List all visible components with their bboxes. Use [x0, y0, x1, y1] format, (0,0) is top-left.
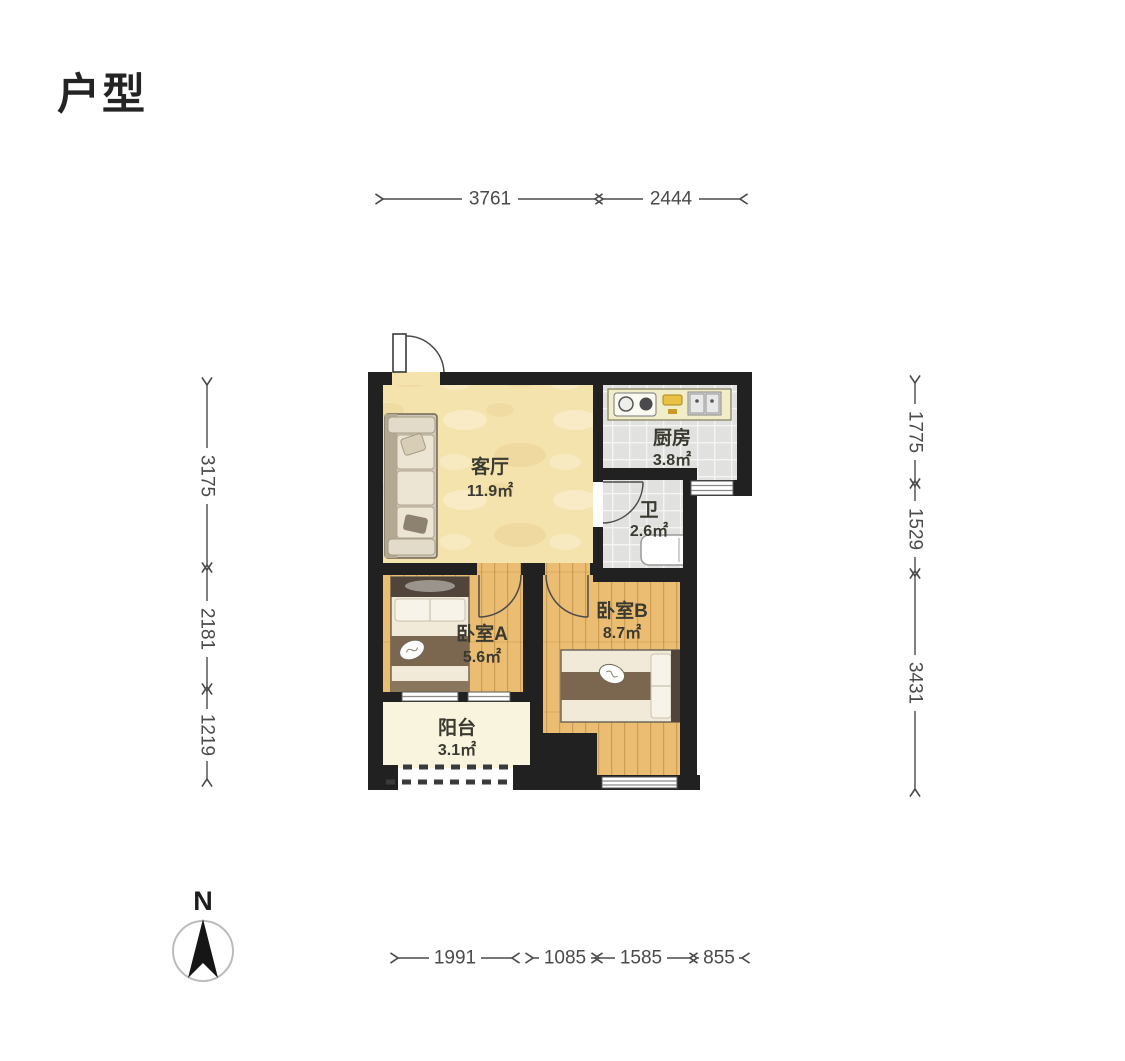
dim-bottom-1: 1991 [434, 948, 476, 969]
room-area-balcony: 3.1㎡ [438, 740, 476, 759]
dim-bottom-2: 1085 [544, 948, 586, 969]
dim-left-3: 1219 [197, 714, 218, 756]
stove-icon [614, 393, 656, 416]
room-area-bedroomB: 8.7㎡ [603, 623, 641, 642]
room-label-living: 客厅 [471, 455, 509, 478]
room-label-balcony: 阳台 [438, 716, 476, 739]
room-area-bath: 2.6㎡ [630, 521, 668, 540]
room-label-bedroomA: 卧室A [456, 622, 508, 645]
dim-right-2: 1529 [905, 508, 926, 550]
room-label-bath: 卫 [639, 500, 658, 521]
compass-north-label: N [193, 886, 213, 916]
floorplan-page: 户型 [0, 0, 1125, 1061]
entry-door-icon [393, 334, 444, 372]
room-label-bedroomB: 卧室B [596, 599, 648, 622]
balcony-railing-icon [386, 767, 512, 782]
kitchen-window-icon [691, 481, 733, 495]
entry-floor [392, 372, 440, 385]
room-label-kitchen: 厨房 [653, 426, 691, 449]
dim-bottom-3: 1585 [620, 948, 662, 969]
sink-icon [688, 392, 721, 415]
bedB [561, 650, 685, 722]
compass: N [173, 886, 233, 981]
dim-right-1: 1775 [905, 411, 926, 453]
sofa [385, 414, 437, 558]
kitchen-counter [608, 389, 731, 420]
bedroomA-window2-icon [468, 692, 510, 701]
dim-right-3: 3431 [905, 662, 926, 704]
bedroomB-window-icon [602, 777, 677, 788]
dim-left-2: 2181 [197, 608, 218, 650]
dim-left-1: 3175 [197, 455, 218, 497]
bedroomA-window-icon [402, 692, 458, 701]
room-area-bedroomA: 5.6㎡ [463, 647, 501, 666]
floorplan-image[interactable]: 客厅 11.9㎡ 厨房 3.8㎡ 卫 2.6㎡ 卧室A 5.6㎡ 卧室B 8.7… [0, 0, 1125, 1061]
dim-bottom-4: 855 [703, 948, 735, 969]
room-area-kitchen: 3.8㎡ [653, 450, 691, 469]
dim-top-1: 3761 [469, 189, 511, 210]
room-area-living: 11.9㎡ [467, 481, 513, 500]
dim-top-2: 2444 [650, 189, 693, 210]
